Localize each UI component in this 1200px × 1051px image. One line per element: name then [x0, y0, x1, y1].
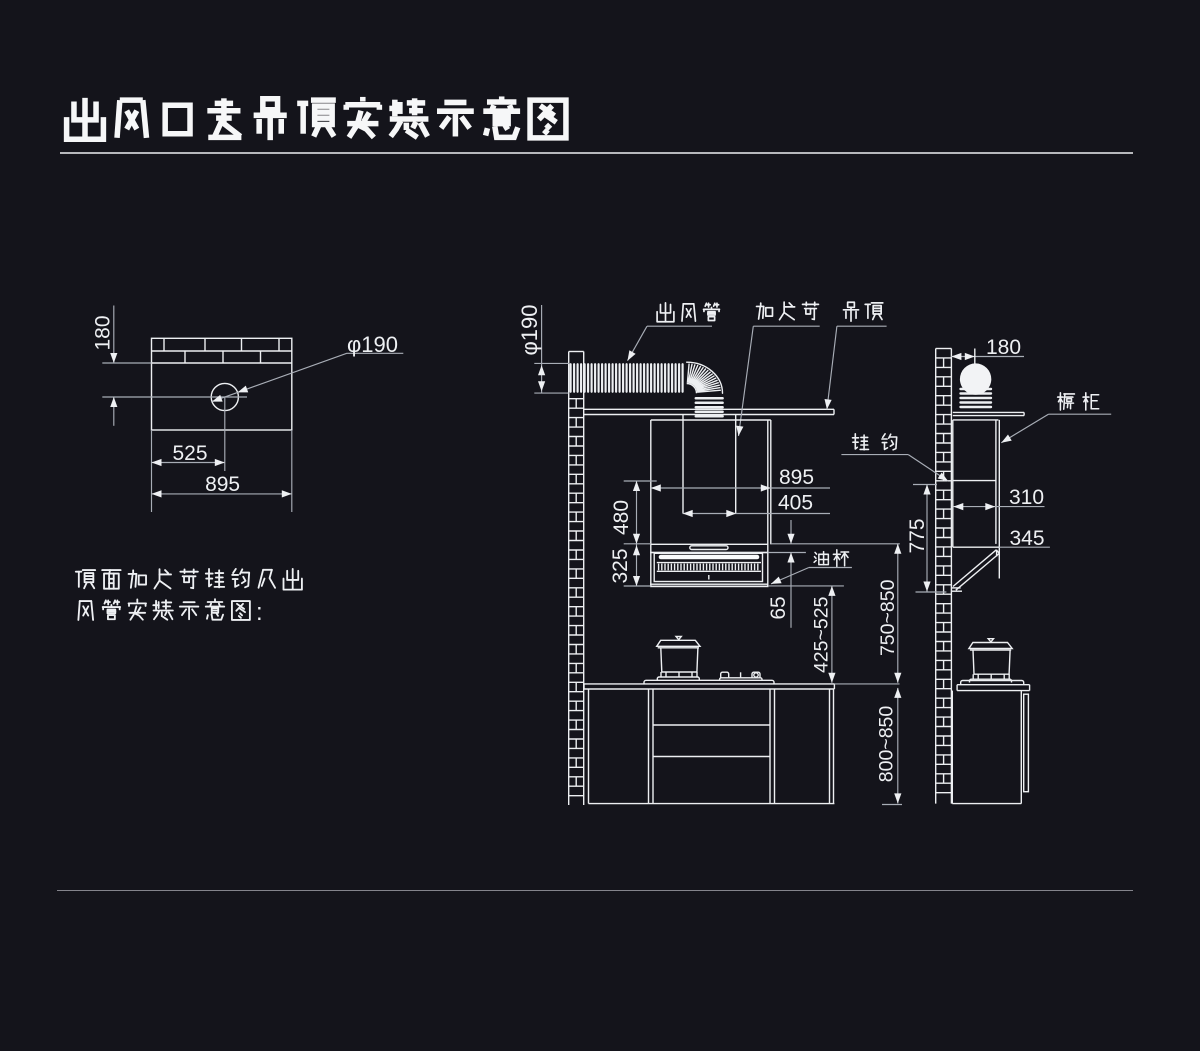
svg-text:480: 480 [610, 500, 633, 535]
svg-text:895: 895 [205, 473, 240, 496]
svg-text:310: 310 [1009, 486, 1044, 509]
svg-text:800~850: 800~850 [876, 706, 898, 783]
svg-text:425~525: 425~525 [811, 596, 833, 673]
svg-text:750~850: 750~850 [877, 579, 899, 656]
svg-text:325: 325 [609, 548, 632, 583]
svg-text:895: 895 [779, 466, 814, 489]
svg-text:775: 775 [906, 518, 929, 553]
svg-text:180: 180 [92, 315, 115, 350]
svg-text::: : [256, 599, 263, 626]
svg-text:φ190: φ190 [347, 332, 398, 357]
svg-text:φ190: φ190 [517, 305, 542, 356]
svg-text:180: 180 [986, 336, 1021, 359]
svg-text:525: 525 [172, 442, 207, 465]
svg-text:65: 65 [767, 596, 790, 619]
svg-text:405: 405 [778, 492, 813, 515]
svg-text:345: 345 [1010, 527, 1045, 550]
